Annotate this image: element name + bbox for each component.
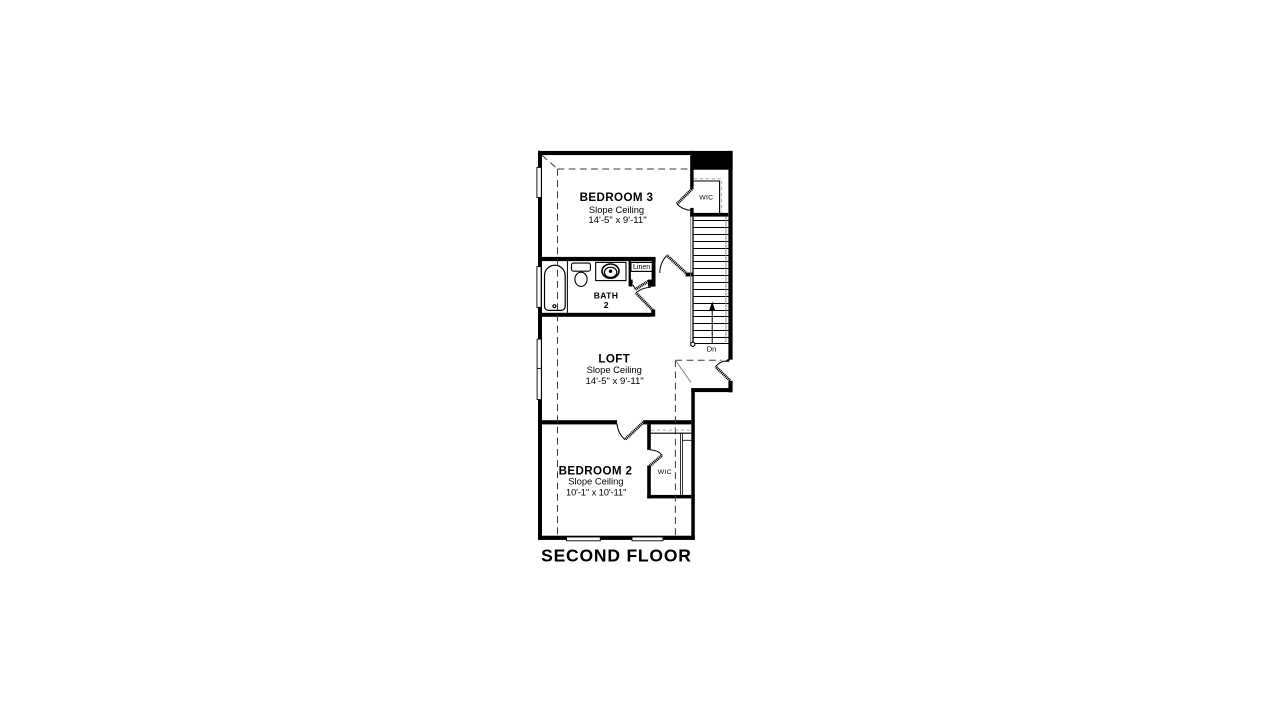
svg-text:Slope Ceiling: Slope Ceiling xyxy=(589,204,644,215)
svg-text:BEDROOM 3: BEDROOM 3 xyxy=(580,191,654,204)
svg-text:Slope Ceiling: Slope Ceiling xyxy=(587,364,642,375)
svg-text:10'-1" x 10'-11": 10'-1" x 10'-11" xyxy=(566,488,626,498)
svg-text:Dn: Dn xyxy=(707,345,717,354)
svg-text:BATH: BATH xyxy=(594,290,618,300)
svg-text:WIC: WIC xyxy=(699,195,713,202)
svg-text:Linen: Linen xyxy=(633,264,650,271)
svg-text:14'-5" x 9'-11": 14'-5" x 9'-11" xyxy=(585,376,643,387)
svg-text:14'-5" x 9'-11": 14'-5" x 9'-11" xyxy=(588,215,646,226)
svg-text:Slope Ceiling: Slope Ceiling xyxy=(568,476,623,487)
svg-text:WIC: WIC xyxy=(658,469,672,476)
svg-text:SECOND FLOOR: SECOND FLOOR xyxy=(541,546,692,566)
svg-text:2: 2 xyxy=(604,300,609,310)
